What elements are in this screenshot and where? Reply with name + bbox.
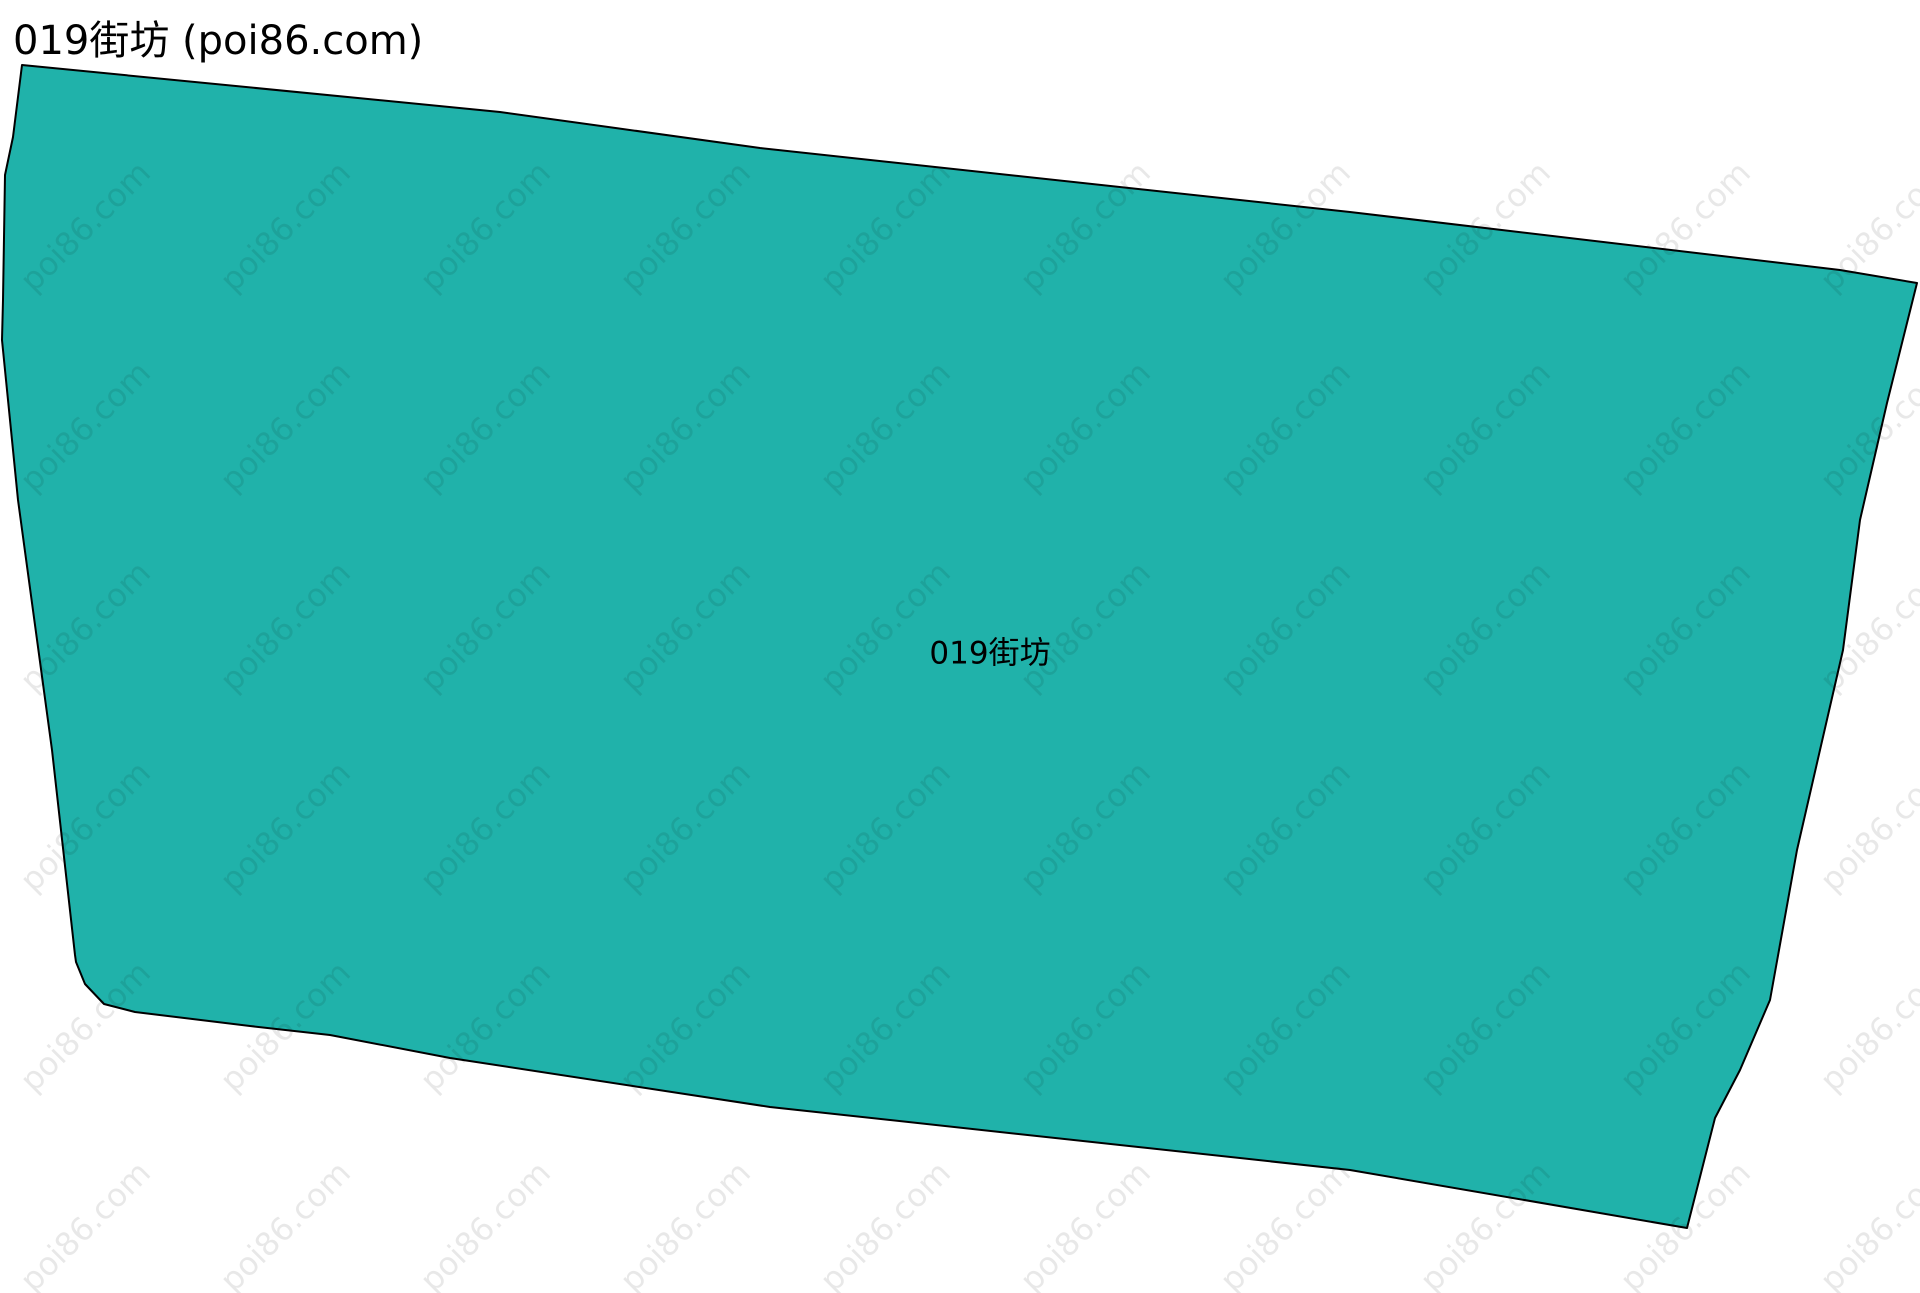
region-label: 019街坊 — [929, 628, 1050, 673]
map-canvas: poi86.compoi86.compoi86.compoi86.compoi8… — [0, 0, 1920, 1293]
page-title: 019街坊 (poi86.com) — [13, 8, 423, 66]
